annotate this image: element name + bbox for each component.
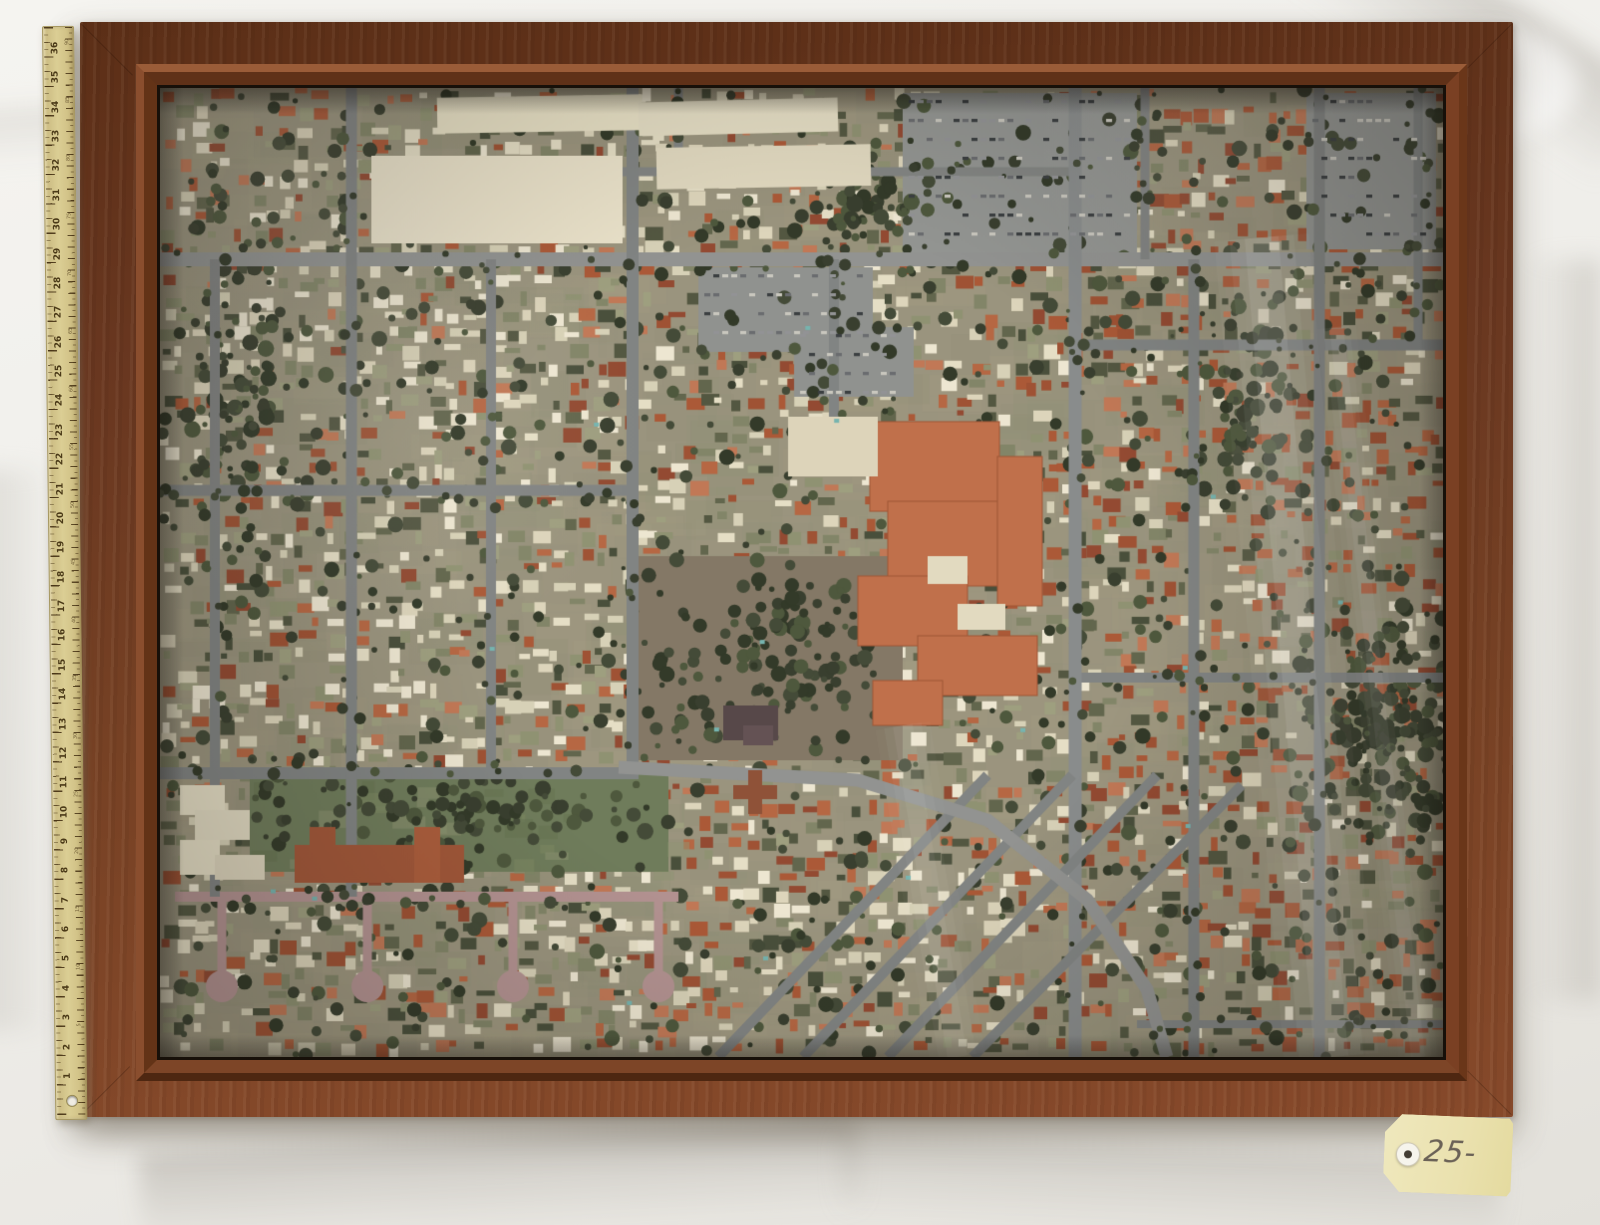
picture-frame [80,22,1513,1117]
ruler-cm-number: 35 [72,673,78,683]
ruler-inch-number: 13 [58,716,68,730]
ruler-inch-number: 8 [60,863,70,877]
ruler-cm-number: 90 [64,37,70,47]
ruler-inch-number: 11 [59,775,69,789]
ruler-inch-number: 19 [56,540,66,554]
frame-molding-inner [144,72,1459,1073]
ruler-cm-number: 75 [66,210,72,220]
ruler-inch-number: 34 [51,100,61,114]
tag-label: 25-234 [1418,1115,1513,1196]
ruler-cm-number: 25 [73,788,79,798]
ruler-inch-number: 25 [54,364,64,378]
ruler-inch-number: 27 [53,305,63,319]
ruler-cm-number: 50 [70,499,76,509]
ruler-inch-number: 22 [55,452,65,466]
ruler-inch-number: 31 [52,188,62,202]
ruler-inch-number: 10 [60,805,70,819]
ruler-cm-number: 15 [75,904,81,914]
ruler-inch-number: 6 [61,922,71,936]
ruler-inch-number: 21 [56,481,66,495]
ruler-cm-number: 70 [67,268,73,278]
ruler-inch-number: 32 [52,158,62,172]
ruler-inch-number: 29 [53,247,63,261]
ruler-inch-number: 16 [57,628,67,642]
cloth-fold [1528,260,1600,1000]
ruler-inch-number: 4 [62,981,72,995]
ruler-inch-number: 9 [60,834,70,848]
frame-rabbet-gap [157,85,1446,1060]
aerial-photo-canvas [160,88,1443,1057]
ruler-cm-number: 55 [69,442,75,452]
ruler-cm-number: 10 [75,962,81,972]
ruler-cm-number: 45 [70,557,76,567]
ruler-inch-number: 36 [50,41,60,55]
ruler-inch-number: 12 [59,746,69,760]
cloth-fold [138,1116,862,1225]
ruler-inch-number: 2 [62,1039,72,1053]
ruler-inch-number: 7 [61,893,71,907]
ruler-inch-number: 33 [51,129,61,143]
ruler-cm-number: 40 [71,615,77,625]
ruler-inch-number: 23 [55,423,65,437]
ruler-inch-number: 20 [56,511,66,525]
tag-hole [1396,1142,1421,1167]
ruler-cm-number: 20 [74,846,80,856]
ruler-cm-number: 60 [68,384,74,394]
ruler-inch-number: 28 [53,276,63,290]
frame-molding-outer [136,64,1467,1081]
scene-backdrop: 3635343332313029282726252423222120191817… [0,0,1600,1225]
ruler-inch-number: 35 [51,70,61,84]
ruler-inch-number: 1 [63,1069,73,1083]
inventory-tag: 25-234 [1382,1113,1513,1196]
ruler-inch-number: 5 [61,951,71,965]
ruler-inch-number: 15 [58,658,68,672]
ruler-inch-number: 14 [58,687,68,701]
ruler-hang-hole [66,1095,78,1107]
ruler-inch-number: 17 [57,599,67,613]
ruler-inch-number: 30 [52,217,62,231]
ruler-cm-number: 65 [68,326,74,336]
ruler-cm-number: 30 [73,731,79,741]
ruler-inch-number: 18 [57,570,67,584]
ruler-cm-number: 5 [76,1020,82,1030]
ruler-inch-number: 3 [62,1010,72,1024]
frame-flat-band [80,22,1513,1117]
ruler-cm-number: 85 [65,95,71,105]
cloth-fold [0,470,52,1030]
ruler-cm-number: 80 [66,153,72,163]
ruler-inch-number: 24 [54,393,64,407]
ruler-inch-number: 26 [54,335,64,349]
